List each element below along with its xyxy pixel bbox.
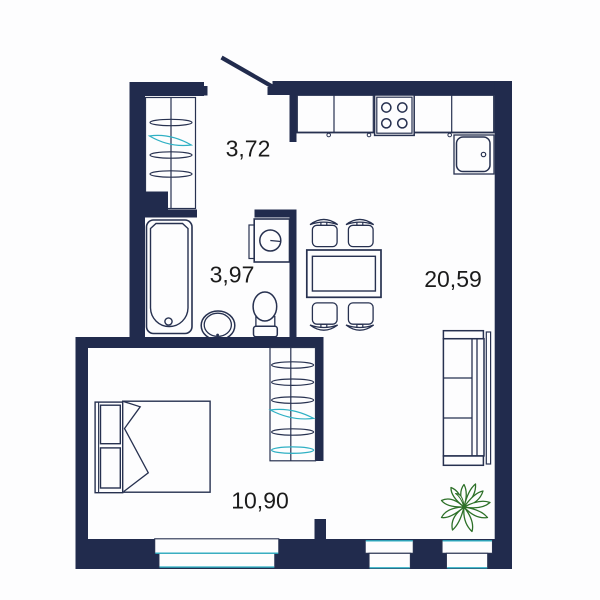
svg-text:3,97: 3,97 (210, 262, 255, 288)
svg-text:20,59: 20,59 (424, 266, 482, 292)
svg-text:10,90: 10,90 (231, 488, 289, 514)
svg-text:3,72: 3,72 (226, 136, 271, 162)
